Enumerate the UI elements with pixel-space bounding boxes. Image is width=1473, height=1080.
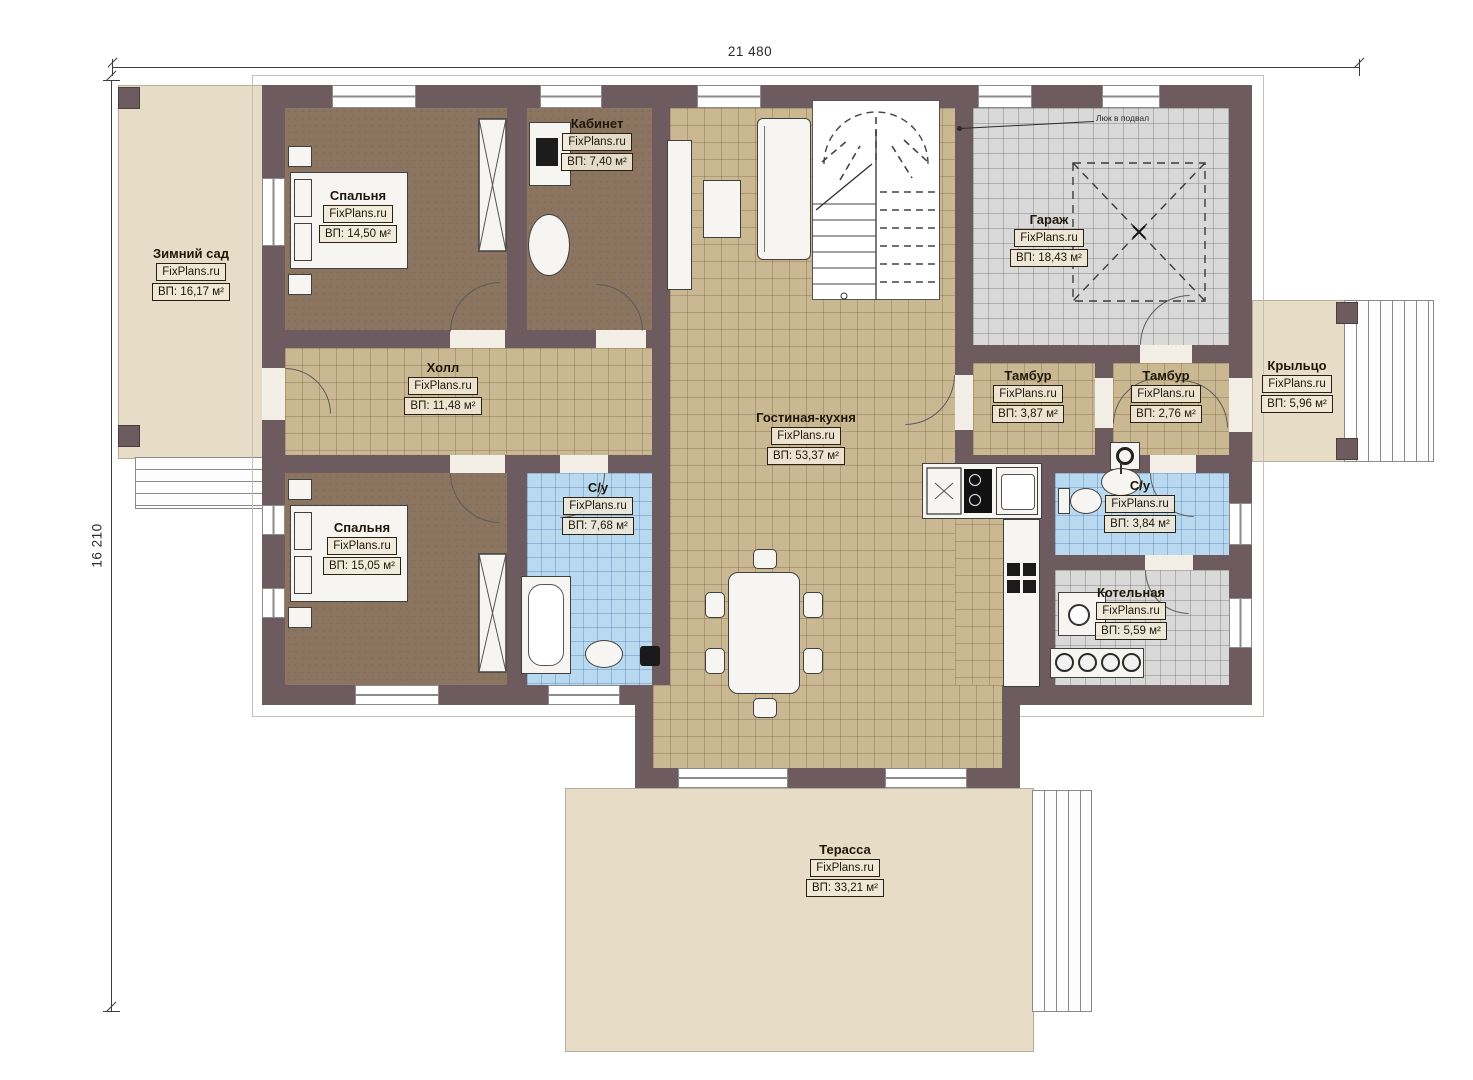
bathtub-basin <box>528 584 564 666</box>
toilet <box>585 640 623 668</box>
entry-steps <box>135 457 264 509</box>
kitchen-cabinet <box>926 467 962 515</box>
room-name: С/у <box>588 480 608 495</box>
door-opening <box>1150 455 1196 473</box>
door-opening <box>560 455 608 473</box>
terrace-steps <box>1032 790 1092 1012</box>
floor-drain <box>640 646 660 666</box>
room-name: Котельная <box>1097 585 1165 600</box>
dimension-height-line <box>111 80 112 1012</box>
door-opening <box>450 455 505 473</box>
watermark: FixPlans.ru <box>1262 375 1332 393</box>
stove-burner <box>969 494 981 506</box>
dimension-height-label: 16 210 <box>90 511 105 581</box>
equipment-dial <box>1055 653 1074 672</box>
leader-dot <box>957 126 962 131</box>
washing-machine-door <box>1116 447 1134 465</box>
dimension-tick <box>103 1011 120 1012</box>
chair <box>705 648 725 674</box>
room-area: ВП: 5,96 м² <box>1261 395 1333 413</box>
room-label-bathroom1: С/у FixPlans.ru ВП: 7,68 м² <box>532 480 664 535</box>
door-opening <box>596 330 646 348</box>
hob-burner <box>1023 580 1036 593</box>
door-opening <box>1140 345 1192 363</box>
nightstand <box>288 146 312 167</box>
wardrobe <box>478 553 507 673</box>
room-area: ВП: 11,48 м² <box>404 397 481 415</box>
room-area: ВП: 3,84 м² <box>1104 515 1176 533</box>
nightstand <box>288 607 312 628</box>
chair <box>803 648 823 674</box>
room-label-office: Кабинет FixPlans.ru ВП: 7,40 м² <box>531 116 663 171</box>
chair <box>705 592 725 618</box>
room-label-bathroom2: С/у FixPlans.ru ВП: 3,84 м² <box>1074 478 1206 533</box>
wardrobe <box>478 118 507 252</box>
column-marker <box>1336 438 1358 460</box>
floor-plan-canvas: 21 480 16 210 <box>0 0 1473 1080</box>
terrace-door <box>678 768 788 788</box>
hob-burner <box>1007 580 1020 593</box>
door-opening <box>1145 555 1193 570</box>
room-label-hall: Холл FixPlans.ru ВП: 11,48 м² <box>377 360 509 415</box>
watermark: FixPlans.ru <box>771 427 841 445</box>
window <box>978 85 1032 108</box>
door-opening <box>450 330 505 348</box>
watermark: FixPlans.ru <box>563 497 633 515</box>
watermark: FixPlans.ru <box>562 133 632 151</box>
window <box>1229 503 1252 545</box>
stove-burner <box>969 474 981 486</box>
window <box>355 685 439 705</box>
sink-basin <box>1001 474 1035 510</box>
room-label-garage: Гараж FixPlans.ru ВП: 18,43 м² <box>983 212 1115 267</box>
room-name: Гараж <box>1030 212 1069 227</box>
room-label-bedroom2: Спальня FixPlans.ru ВП: 15,05 м² <box>296 520 428 575</box>
window <box>1229 598 1252 648</box>
window <box>262 178 285 246</box>
terrace-door <box>885 768 967 788</box>
room-area: ВП: 3,87 м² <box>992 405 1064 423</box>
coffee-table <box>703 180 741 238</box>
window <box>332 85 416 108</box>
hob-burner <box>1023 563 1036 576</box>
room-name: С/у <box>1130 478 1150 493</box>
room-name: Гостиная-кухня <box>756 410 856 425</box>
nightstand <box>288 274 312 295</box>
room-name: Тамбур <box>1004 368 1051 383</box>
column-marker <box>118 87 140 109</box>
column-marker <box>1336 302 1358 324</box>
room-name: Терасса <box>819 842 871 857</box>
window <box>540 85 602 108</box>
toilet-tank <box>1058 488 1070 514</box>
chair <box>753 698 777 718</box>
kitchen-counter-side <box>1003 519 1040 687</box>
room-area: ВП: 15,05 м² <box>323 557 401 575</box>
watermark: FixPlans.ru <box>1105 495 1175 513</box>
column-marker <box>118 425 140 447</box>
room-area: ВП: 14,50 м² <box>319 225 397 243</box>
window <box>1102 85 1160 108</box>
room-label-vestibule2: Тамбур FixPlans.ru ВП: 2,76 м² <box>1100 368 1232 423</box>
window <box>262 588 285 618</box>
room-area: ВП: 2,76 м² <box>1130 405 1202 423</box>
room-label-boiler-room: Котельная FixPlans.ru ВП: 5,59 м² <box>1065 585 1197 640</box>
watermark: FixPlans.ru <box>327 537 397 555</box>
watermark: FixPlans.ru <box>1131 385 1201 403</box>
room-name: Спальня <box>330 188 386 203</box>
terrace-area <box>565 788 1034 1052</box>
room-area: ВП: 7,40 м² <box>561 153 633 171</box>
room-label-vestibule1: Тамбур FixPlans.ru ВП: 3,87 м² <box>962 368 1094 423</box>
staircase <box>812 100 940 300</box>
room-name: Зимний сад <box>153 246 229 261</box>
basement-hatch-note: Люк в подвал <box>1096 113 1149 123</box>
faucet <box>1120 462 1122 474</box>
room-area: ВП: 18,43 м² <box>1010 249 1088 267</box>
nightstand <box>288 479 312 500</box>
room-area: ВП: 5,59 м² <box>1095 622 1167 640</box>
sofa <box>757 118 811 260</box>
chair <box>803 592 823 618</box>
room-label-terrace: Терасса FixPlans.ru ВП: 33,21 м² <box>779 842 911 897</box>
equipment-dial <box>1078 653 1097 672</box>
room-living-extension-floor <box>653 685 1002 768</box>
equipment-dial <box>1101 653 1120 672</box>
window <box>697 85 761 108</box>
hob-burner <box>1007 563 1020 576</box>
room-name: Спальня <box>334 520 390 535</box>
dimension-width-label: 21 480 <box>690 44 810 59</box>
room-area: ВП: 7,68 м² <box>562 517 634 535</box>
watermark: FixPlans.ru <box>810 859 880 877</box>
room-label-bedroom1: Спальня FixPlans.ru ВП: 14,50 м² <box>292 188 424 243</box>
room-label-winter-garden: Зимний сад FixPlans.ru ВП: 16,17 м² <box>125 246 257 301</box>
dimension-width-line <box>112 67 1360 68</box>
room-label-living-kitchen: Гостиная-кухня FixPlans.ru ВП: 53,37 м² <box>740 410 872 465</box>
room-label-porch: Крыльцо FixPlans.ru ВП: 5,96 м² <box>1231 358 1363 413</box>
watermark: FixPlans.ru <box>323 205 393 223</box>
sofa-backrest-line <box>764 126 765 252</box>
door-opening-winter-garden <box>262 368 285 420</box>
room-name: Холл <box>427 360 460 375</box>
room-area: ВП: 53,37 м² <box>767 447 845 465</box>
room-name: Тамбур <box>1142 368 1189 383</box>
room-area: ВП: 33,21 м² <box>806 879 884 897</box>
shelf-unit <box>667 140 692 290</box>
watermark: FixPlans.ru <box>993 385 1063 403</box>
equipment-dial <box>1122 653 1141 672</box>
watermark: FixPlans.ru <box>1096 602 1166 620</box>
dining-table <box>728 572 800 694</box>
watermark: FixPlans.ru <box>1014 229 1084 247</box>
window <box>262 505 285 535</box>
room-name: Кабинет <box>571 116 624 131</box>
room-area: ВП: 16,17 м² <box>152 283 230 301</box>
room-name: Крыльцо <box>1267 358 1326 373</box>
dimension-tick <box>103 80 120 81</box>
watermark: FixPlans.ru <box>408 377 478 395</box>
office-chair <box>528 214 570 276</box>
chair <box>753 549 777 569</box>
window <box>548 685 620 705</box>
watermark: FixPlans.ru <box>156 263 226 281</box>
